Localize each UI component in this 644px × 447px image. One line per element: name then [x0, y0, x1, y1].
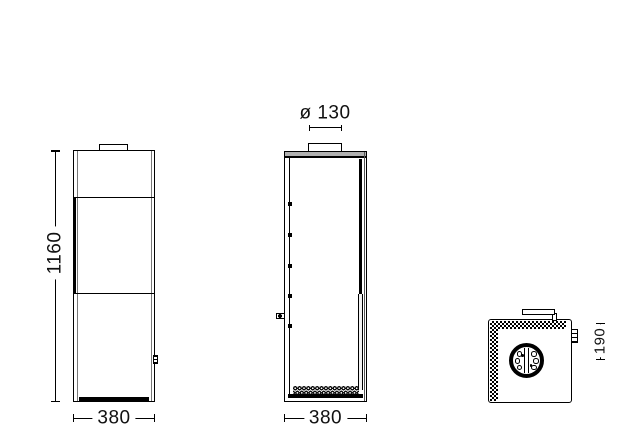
front-height-dim-tick-top	[51, 150, 60, 151]
side-panel-tick	[288, 294, 292, 298]
flue-bolt-hole	[533, 358, 539, 364]
flue-rivet-dot	[530, 364, 533, 367]
front-divider-upper	[74, 197, 154, 198]
front-width-label: 380	[92, 408, 135, 429]
front-width-dim-tick-right	[154, 414, 155, 422]
flue-center-bar	[524, 348, 529, 373]
side-view-body	[284, 151, 367, 402]
front-inner-left-line	[77, 151, 78, 401]
side-top-band	[285, 152, 366, 158]
flue-bolt-hole	[531, 351, 537, 357]
technical-drawing: 1160 380 ø 130 380	[0, 0, 644, 447]
side-depth-label: 380	[304, 408, 347, 429]
front-base-strip	[79, 397, 149, 401]
side-panel-tick	[288, 324, 292, 328]
flue-bolt-hole	[517, 365, 523, 371]
front-latch-knob	[153, 355, 159, 364]
side-latch-knob	[276, 313, 285, 319]
front-top-cap	[99, 144, 128, 151]
side-depth-dim-tick-left	[284, 414, 285, 422]
flue-offset-dim-tick-bottom	[596, 359, 605, 360]
top-insulation-band-top	[490, 321, 566, 329]
side-flue-collar	[308, 143, 342, 152]
side-panel-tick	[288, 233, 292, 237]
flue-offset-label: 190	[592, 325, 609, 358]
side-panel-tick	[288, 264, 292, 268]
flue-bolt-hole	[515, 358, 521, 364]
top-handle-bar	[522, 309, 555, 315]
top-insulation-band-left	[490, 321, 498, 401]
front-height-dim-tick-bottom	[51, 401, 60, 402]
flue-diameter-dim-line	[310, 127, 342, 128]
top-flue-circle	[509, 343, 544, 378]
flue-offset-dim-tick-top	[596, 323, 605, 324]
side-door-glass-lower	[358, 294, 364, 390]
flue-rivet-dot	[521, 354, 524, 357]
side-depth-dim-tick-right	[366, 414, 367, 422]
flue-diameter-label: ø 130	[294, 103, 355, 124]
front-height-label: 1160	[45, 227, 66, 280]
side-right-inner-line	[364, 152, 365, 401]
side-base-strip	[288, 394, 363, 398]
flue-diameter-dim-tick-left	[309, 125, 310, 131]
front-divider-lower	[74, 293, 154, 294]
flue-diameter-dim-tick-right	[341, 125, 342, 131]
front-width-dim-tick-left	[73, 414, 74, 422]
side-left-inner-line	[289, 158, 290, 395]
front-door-hinge-bar	[73, 197, 76, 293]
side-panel-tick	[288, 202, 292, 206]
front-view-body	[73, 150, 155, 402]
front-inner-right-line	[151, 151, 152, 401]
top-side-knob	[571, 329, 578, 343]
side-door-glass-upper	[359, 159, 362, 294]
